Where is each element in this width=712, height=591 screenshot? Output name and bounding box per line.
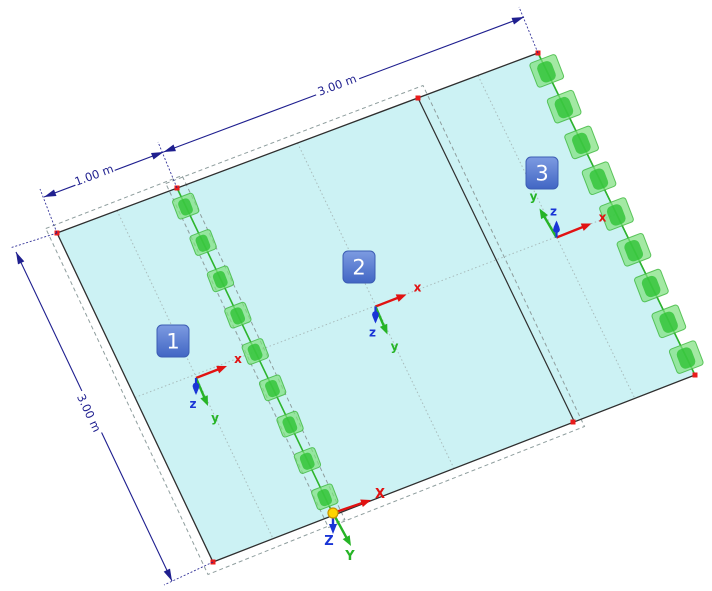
global-origin-point[interactable] <box>328 508 338 518</box>
axis-label: Z <box>324 534 333 549</box>
surface-number: 3 <box>535 162 548 186</box>
surface-label-1[interactable]: 1 <box>157 325 189 357</box>
surface-label-3[interactable]: 3 <box>526 157 558 189</box>
axis-label: y <box>211 411 219 425</box>
node-point[interactable] <box>693 373 698 378</box>
model-canvas[interactable]: 1.00 m3.00 m3.00 mxyz1xyz2xyz3XYZ <box>0 0 712 591</box>
surface-number: 2 <box>352 256 365 280</box>
axis-label: z <box>550 205 557 219</box>
axis-label: Y <box>344 549 355 564</box>
axis-label: x <box>234 352 242 366</box>
axis-label: y <box>391 340 399 354</box>
axis-label: z <box>190 397 197 411</box>
axis-label: x <box>599 211 607 225</box>
node-point[interactable] <box>416 96 421 101</box>
node-point[interactable] <box>571 420 576 425</box>
axis-label: y <box>530 190 538 204</box>
surface-number: 1 <box>166 330 179 354</box>
axis-label: x <box>414 281 422 295</box>
surface-label-2[interactable]: 2 <box>343 251 375 283</box>
axis-label: z <box>369 326 376 340</box>
axis-label: X <box>375 487 385 502</box>
viewport: 1.00 m3.00 m3.00 mxyz1xyz2xyz3XYZ <box>0 0 712 591</box>
